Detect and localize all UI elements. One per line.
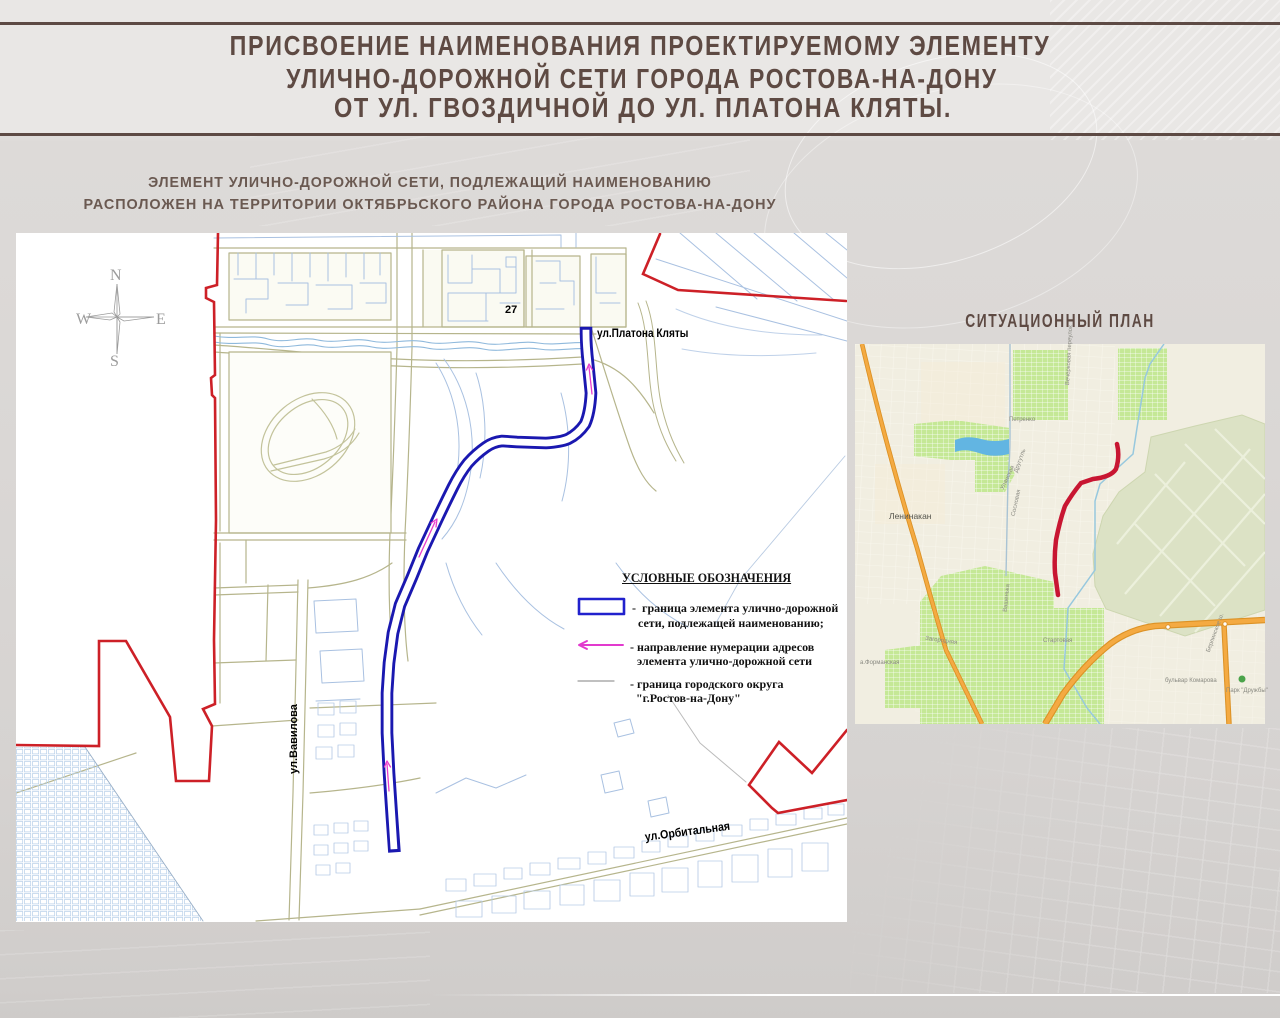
svg-text:W: W: [76, 311, 92, 328]
svg-text:N: N: [110, 267, 122, 284]
svg-text:S: S: [110, 353, 119, 370]
svg-text:E: E: [156, 311, 166, 328]
